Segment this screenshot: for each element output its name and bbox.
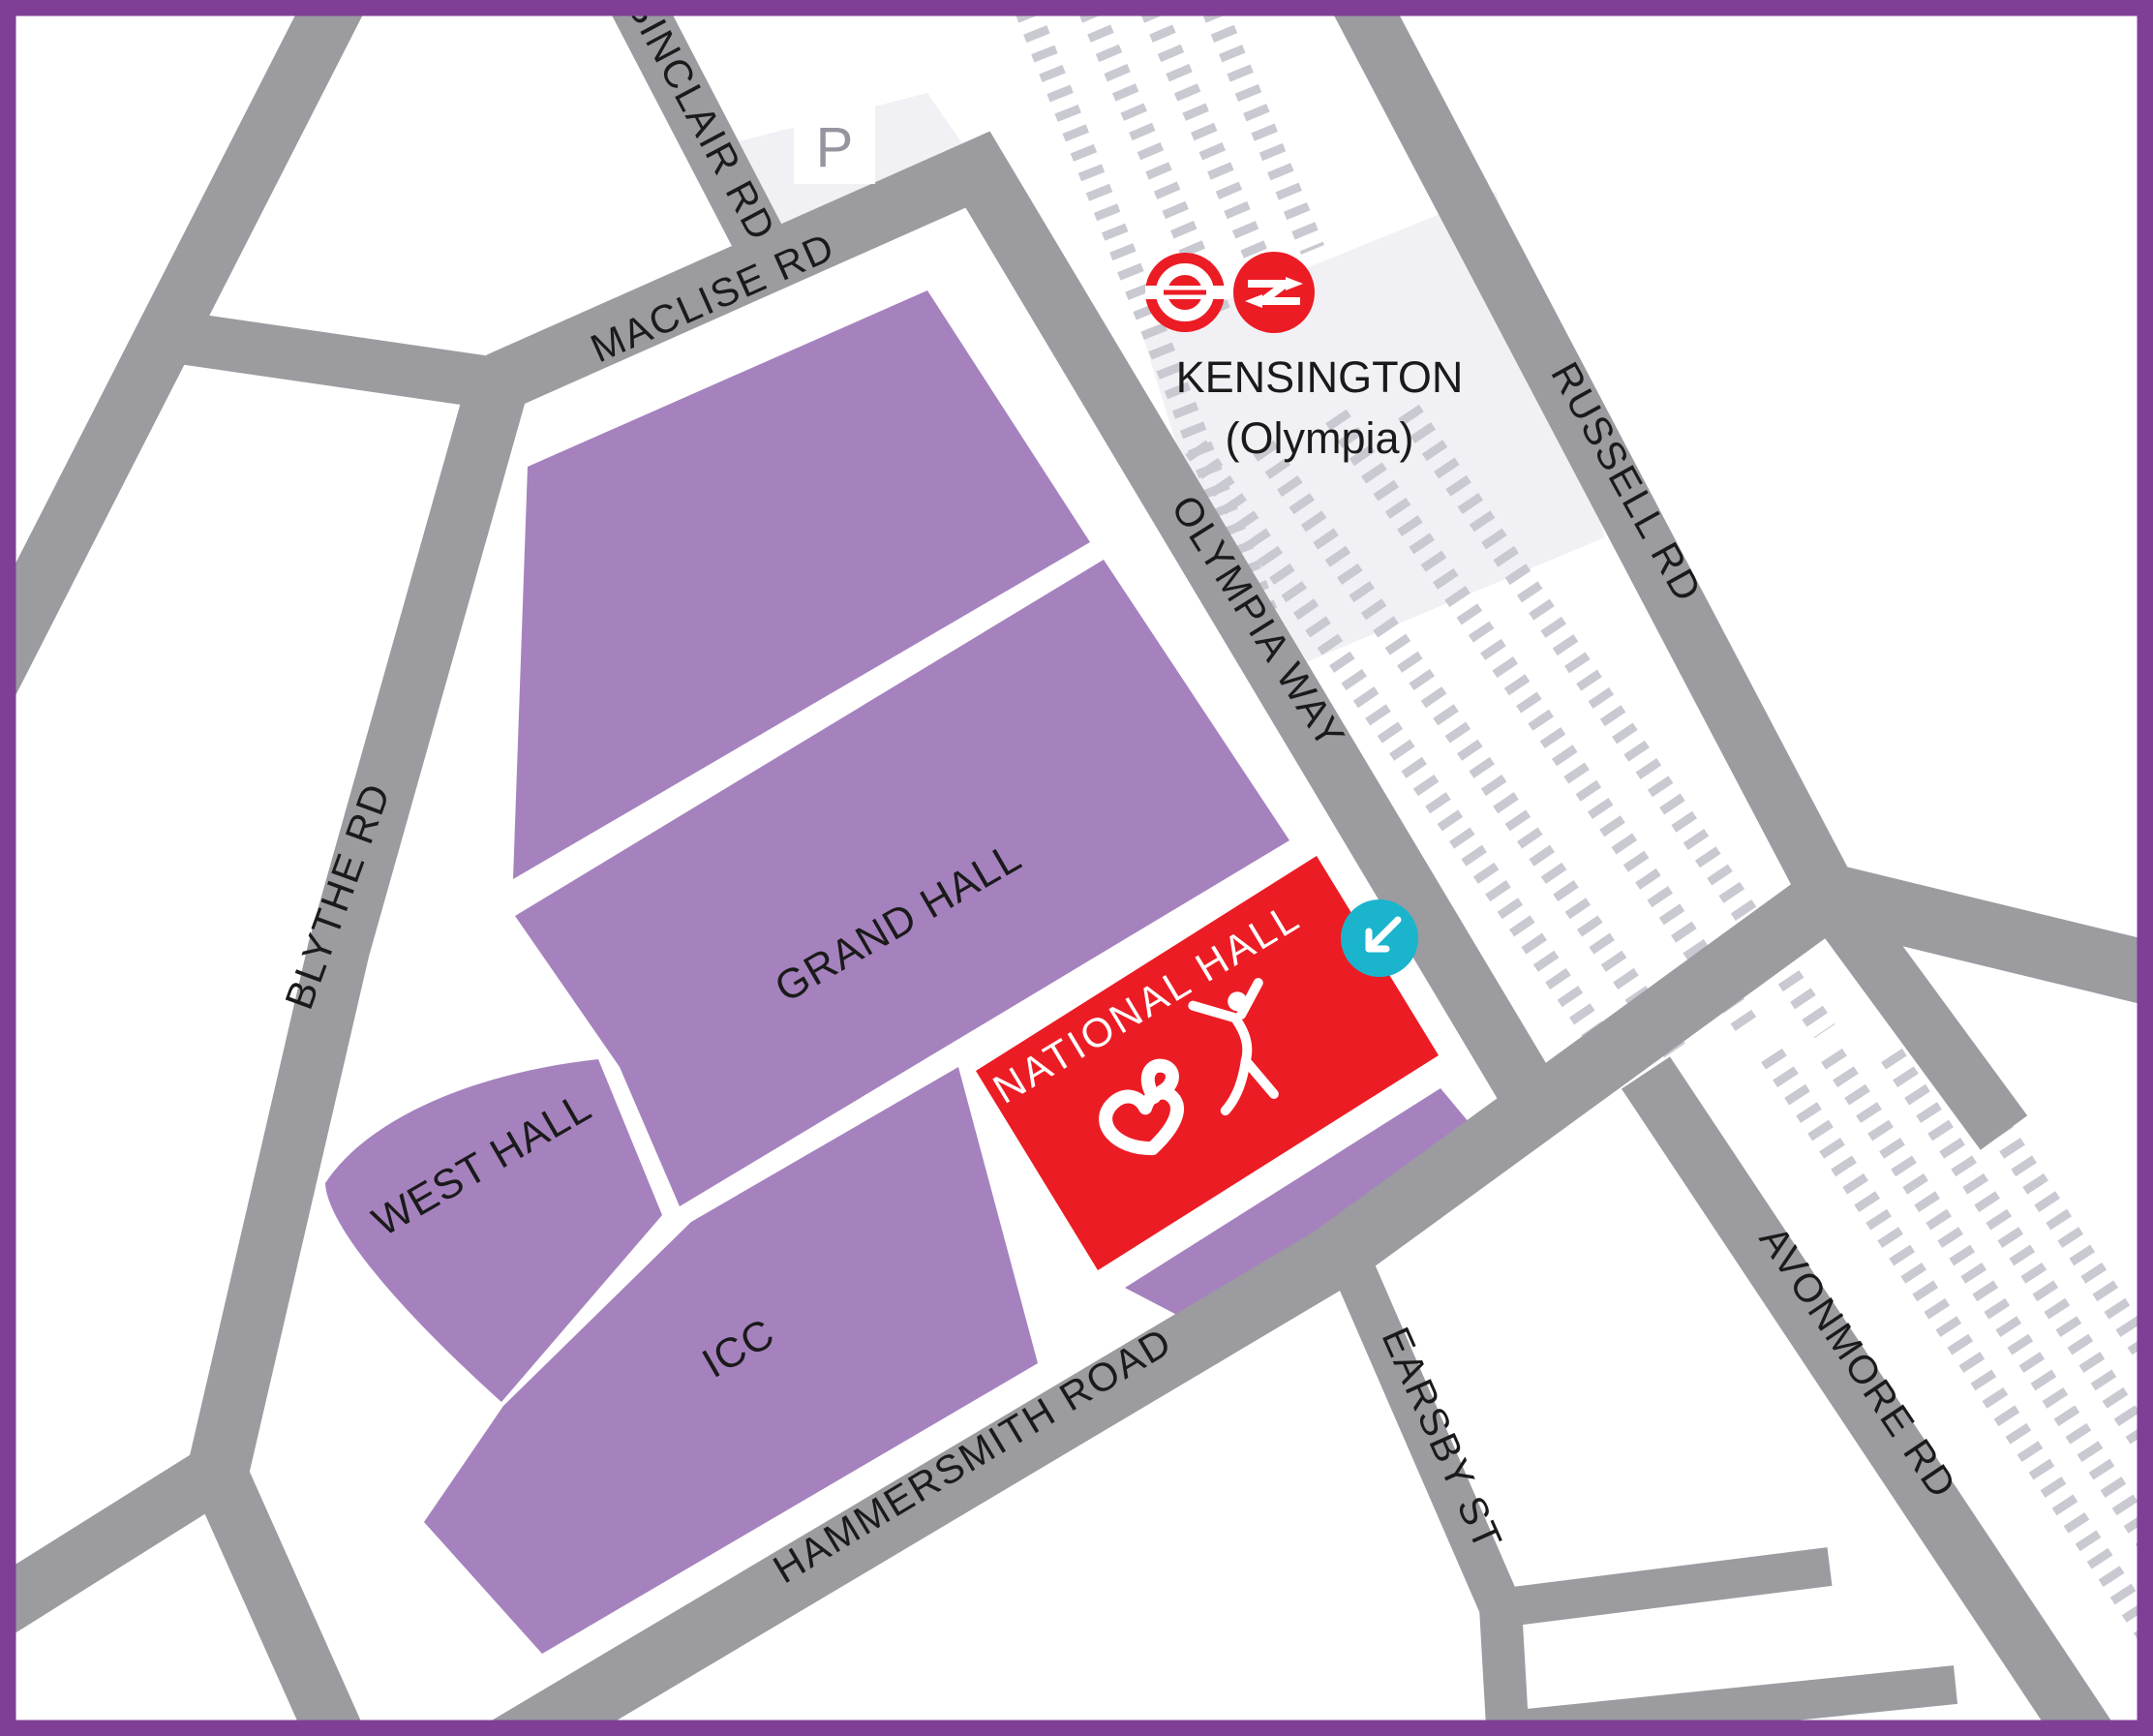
entrance-marker (1341, 899, 1418, 977)
station-name-line1: KENSINGTON (1176, 352, 1464, 402)
station-name-line2: (Olympia) (1225, 413, 1413, 463)
parking-letter: P (816, 116, 854, 179)
olympia-venue-map: SINCLAIR RD MACLISE RD BLYTHE RD OLYMPIA… (0, 0, 2153, 1736)
national-rail-icon (1233, 252, 1315, 333)
parking-icon: P (794, 103, 875, 184)
london-underground-roundel-icon (1145, 253, 1225, 332)
